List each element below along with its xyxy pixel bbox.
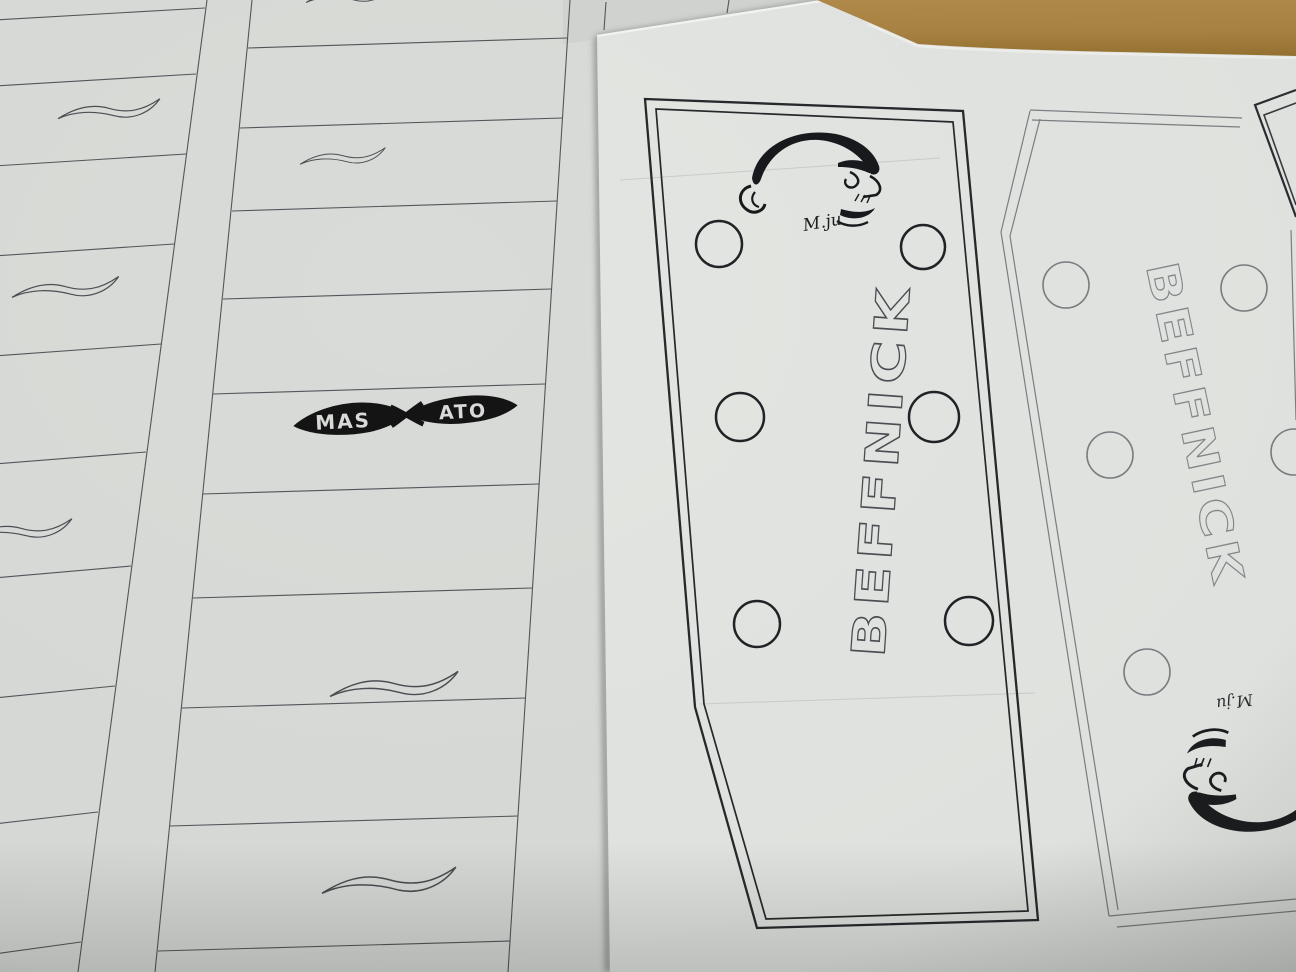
bottom-shadow: [0, 842, 1296, 972]
scene-canvas: MAS ATO BEFFNICK M.ju: [0, 0, 1296, 972]
vignette-overlay: [0, 0, 1296, 972]
photo-of-template-sheets: MAS ATO BEFFNICK M.ju: [0, 0, 1296, 972]
